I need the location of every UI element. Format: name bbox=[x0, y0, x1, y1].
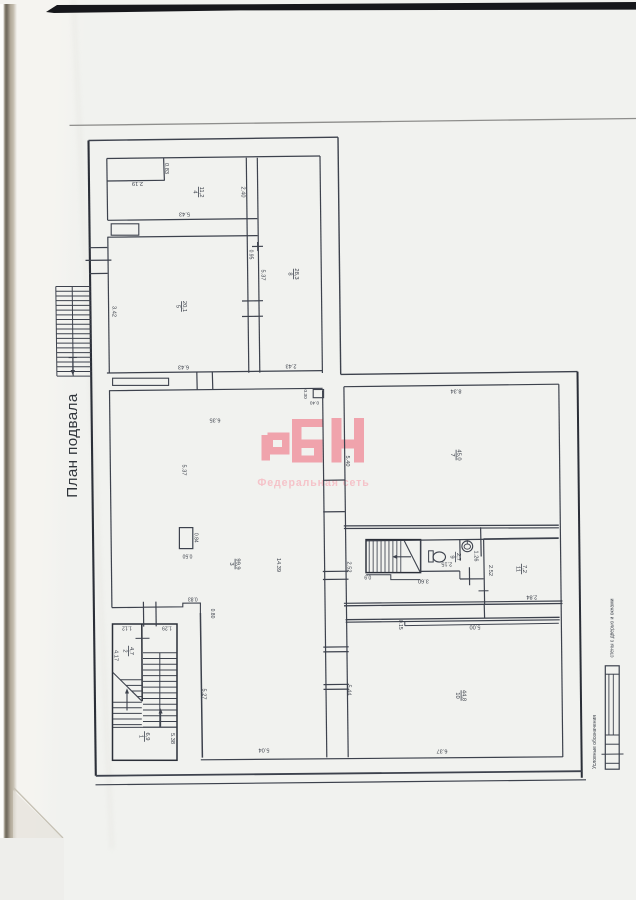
svg-text:5.44: 5.44 bbox=[346, 685, 352, 696]
svg-text:99,9: 99,9 bbox=[235, 558, 241, 569]
svg-text:44,8: 44,8 bbox=[461, 690, 467, 701]
svg-text:0.83: 0.83 bbox=[188, 596, 198, 602]
svg-text:10: 10 bbox=[454, 692, 460, 698]
svg-text:0.80: 0.80 bbox=[209, 609, 215, 619]
svg-text:Условные обозначения: Условные обозначения bbox=[592, 715, 598, 769]
svg-text:8: 8 bbox=[287, 272, 293, 275]
svg-text:2.43: 2.43 bbox=[286, 363, 297, 369]
svg-text:1.29: 1.29 bbox=[162, 625, 172, 631]
svg-text:5.37: 5.37 bbox=[260, 270, 266, 281]
svg-text:0.83: 0.83 bbox=[163, 163, 169, 174]
svg-text:стены с дверью и окнами: стены с дверью и окнами bbox=[610, 598, 616, 657]
svg-text:3: 3 bbox=[228, 562, 234, 565]
svg-text:5.38: 5.38 bbox=[169, 733, 175, 744]
svg-text:План подвала: План подвала bbox=[64, 393, 81, 498]
svg-text:2.52: 2.52 bbox=[346, 562, 352, 573]
svg-text:2.15: 2.15 bbox=[441, 561, 452, 567]
svg-text:2.19: 2.19 bbox=[132, 180, 143, 186]
svg-text:5.40: 5.40 bbox=[344, 456, 350, 467]
svg-text:0,9: 0,9 bbox=[364, 574, 371, 580]
svg-text:14.39: 14.39 bbox=[275, 558, 281, 572]
svg-text:5.00: 5.00 bbox=[470, 624, 481, 630]
svg-text:2.40: 2.40 bbox=[239, 187, 245, 198]
svg-text:2,7: 2,7 bbox=[455, 553, 461, 561]
svg-text:5.04: 5.04 bbox=[259, 747, 270, 753]
svg-text:2.52: 2.52 bbox=[487, 565, 493, 576]
svg-text:1.12: 1.12 bbox=[122, 625, 132, 631]
svg-text:5.37: 5.37 bbox=[180, 465, 186, 476]
svg-text:6.35: 6.35 bbox=[210, 417, 221, 423]
svg-text:3.42: 3.42 bbox=[110, 306, 116, 317]
svg-text:6.37: 6.37 bbox=[437, 748, 448, 754]
svg-text:8.34: 8.34 bbox=[451, 388, 462, 394]
svg-text:6.43: 6.43 bbox=[178, 364, 189, 370]
svg-text:11: 11 bbox=[515, 566, 521, 572]
svg-text:1: 1 bbox=[138, 735, 144, 738]
svg-text:0.15: 0.15 bbox=[397, 620, 403, 630]
svg-text:3.60: 3.60 bbox=[418, 578, 429, 584]
svg-text:4,7: 4,7 bbox=[128, 647, 134, 655]
svg-text:7,2: 7,2 bbox=[521, 565, 527, 573]
svg-text:5: 5 bbox=[175, 305, 181, 308]
svg-text:0.95: 0.95 bbox=[248, 250, 254, 260]
svg-text:0.50: 0.50 bbox=[182, 553, 192, 559]
svg-text:0.30: 0.30 bbox=[302, 389, 308, 399]
svg-text:2: 2 bbox=[122, 649, 128, 652]
svg-text:5.43: 5.43 bbox=[179, 211, 190, 217]
svg-text:0.84: 0.84 bbox=[193, 533, 199, 543]
svg-text:2.84: 2.84 bbox=[526, 594, 537, 600]
svg-text:5.27: 5.27 bbox=[200, 689, 206, 700]
svg-text:9: 9 bbox=[449, 555, 455, 558]
svg-text:20,1: 20,1 bbox=[181, 301, 187, 312]
svg-text:6,9: 6,9 bbox=[144, 732, 150, 740]
svg-text:Федеральная сеть: Федеральная сеть bbox=[257, 477, 369, 489]
svg-text:0.40: 0.40 bbox=[310, 400, 320, 406]
svg-text:1.26: 1.26 bbox=[473, 551, 479, 562]
svg-text:28,3: 28,3 bbox=[293, 268, 299, 279]
svg-text:7: 7 bbox=[449, 453, 455, 456]
svg-text:11,2: 11,2 bbox=[198, 187, 204, 198]
svg-text:45,0: 45,0 bbox=[456, 449, 462, 460]
svg-text:4: 4 bbox=[192, 190, 198, 194]
svg-text:4.17: 4.17 bbox=[113, 650, 119, 661]
